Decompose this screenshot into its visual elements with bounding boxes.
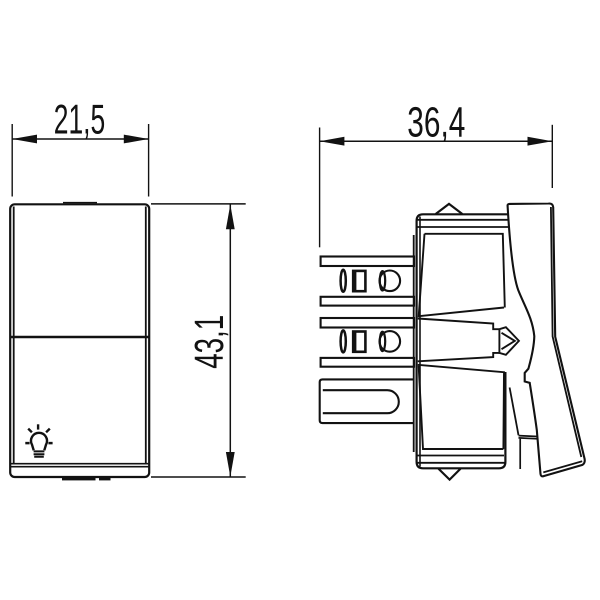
svg-text:36,4: 36,4 (407, 98, 465, 146)
svg-text:21,5: 21,5 (54, 96, 106, 143)
svg-text:43,1: 43,1 (186, 315, 232, 369)
